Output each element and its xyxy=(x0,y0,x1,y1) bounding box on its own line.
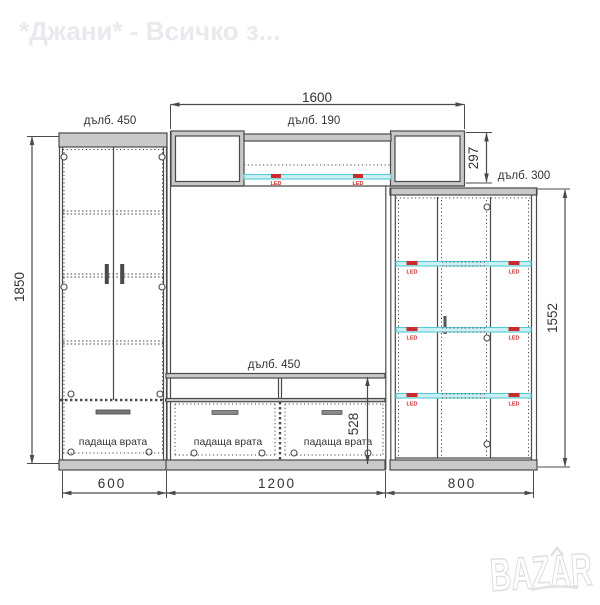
svg-text:падаща врата: падаща врата xyxy=(304,436,373,448)
svg-text:LED: LED xyxy=(407,270,418,276)
svg-text:дълб. 450: дълб. 450 xyxy=(84,115,137,127)
svg-text:1552: 1552 xyxy=(545,303,560,333)
svg-text:LED: LED xyxy=(509,270,520,276)
svg-text:дълб. 190: дълб. 190 xyxy=(288,115,341,127)
svg-text:дълб. 300: дълб. 300 xyxy=(498,170,551,182)
svg-text:BAZAR: BAZAR xyxy=(489,543,594,600)
svg-text:падаща врата: падаща врата xyxy=(79,436,148,448)
svg-text:падаща врата: падаща врата xyxy=(194,436,263,448)
svg-text:LED: LED xyxy=(407,402,418,408)
svg-text:1850: 1850 xyxy=(12,272,27,302)
svg-text:1200: 1200 xyxy=(258,476,296,491)
svg-text:800: 800 xyxy=(448,476,477,491)
svg-text:1600: 1600 xyxy=(302,90,332,105)
svg-text:LED: LED xyxy=(271,181,282,187)
svg-text:LED: LED xyxy=(407,336,418,342)
svg-text:528: 528 xyxy=(346,413,361,436)
svg-text:дълб. 450: дълб. 450 xyxy=(248,359,301,371)
svg-text:LED: LED xyxy=(509,336,520,342)
svg-text:LED: LED xyxy=(509,402,520,408)
svg-text:600: 600 xyxy=(98,476,127,491)
svg-text:*Джани* - Всичко з...: *Джани* - Всичко з... xyxy=(19,16,280,46)
svg-text:297: 297 xyxy=(466,147,481,170)
svg-text:LED: LED xyxy=(353,181,364,187)
